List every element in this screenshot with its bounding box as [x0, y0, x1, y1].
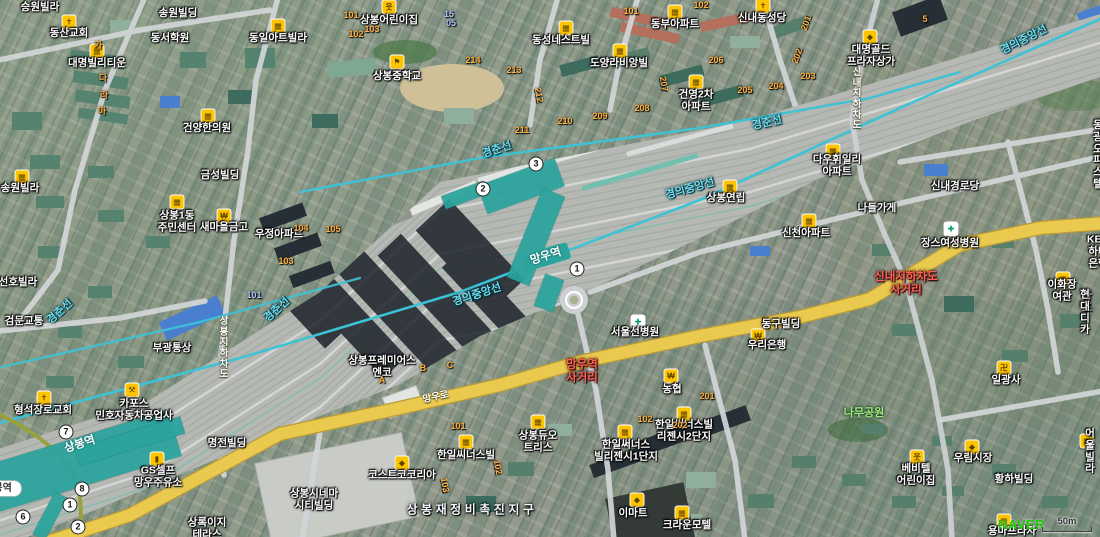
poi-label[interactable]: 동산교회	[50, 28, 89, 40]
block-number: 202	[790, 47, 805, 65]
poi-label[interactable]: 상록이지 테라스	[188, 517, 227, 537]
poi-label[interactable]: 승원빌라	[21, 2, 60, 14]
block-number: 103	[278, 256, 293, 266]
rail-line-label: 경춘선	[751, 114, 783, 133]
poi-label[interactable]: 신천아파트	[782, 228, 830, 240]
bank-icon[interactable]: ₩	[664, 369, 679, 384]
poi-label[interactable]: 다우휘일리 아파트	[813, 154, 861, 178]
poi-label[interactable]: 서울선병원	[611, 327, 659, 339]
station-exit-badge[interactable]: 3	[529, 157, 544, 172]
poi-label[interactable]: 선호빌라	[0, 277, 37, 289]
block-number: 102	[492, 459, 505, 476]
building-icon[interactable]: ▦	[618, 425, 633, 440]
poi-label[interactable]: 명전빌딩	[208, 438, 247, 450]
station-exit-badge[interactable]: 1	[63, 498, 78, 513]
poi-label[interactable]: 대명골드 프라자상가	[847, 44, 895, 68]
naver-logo[interactable]: NAVER	[998, 517, 1045, 532]
poi-label[interactable]: 이마트	[619, 508, 648, 520]
block-number: 206	[708, 55, 723, 65]
poi-label[interactable]: 카포스 민호자동차공업사	[95, 398, 172, 422]
daycare-icon[interactable]: 웃	[382, 0, 397, 15]
poi-label[interactable]: 송원빌라	[1, 183, 40, 195]
poi-label[interactable]: 농협	[662, 384, 681, 396]
poi-label[interactable]: 상봉시네마 시티빌딩	[290, 488, 338, 512]
station-exit-badge[interactable]: 6	[16, 510, 31, 525]
poi-label[interactable]: 장스여성병원	[921, 238, 979, 250]
block-number: 208	[634, 103, 649, 113]
block-number: 213	[506, 65, 521, 75]
poi-label[interactable]: 동광오피스텔	[1093, 120, 1100, 191]
block-number: 다	[99, 73, 107, 83]
poi-label[interactable]: 한일써너스 빌리젠시1단지	[594, 439, 658, 463]
intersection-label: 신내지하차도 사거리	[874, 271, 937, 297]
car-repair-icon[interactable]: ⚒	[125, 383, 140, 398]
station-exit-badge[interactable]: 2	[476, 182, 491, 197]
poi-label[interactable]: GS셀프 망우주유소	[134, 465, 182, 489]
poi-label[interactable]: 우리은행	[748, 340, 787, 352]
poi-label[interactable]: 어울빌라	[1085, 429, 1095, 476]
scale-label: 50m	[1057, 516, 1076, 527]
building-icon[interactable]: ▦	[459, 435, 474, 450]
block-number: 102	[348, 29, 363, 39]
station-exit-badge[interactable]: 7	[59, 425, 74, 440]
poi-label[interactable]: 상봉연립	[707, 193, 746, 205]
road-label: 망우로	[422, 390, 450, 406]
school-flag-icon[interactable]: ⚑	[390, 55, 405, 70]
shopping-icon[interactable]: ◆	[863, 30, 878, 45]
poi-label[interactable]: 부광통상	[153, 343, 192, 355]
block-number: 205	[737, 85, 752, 95]
rail-line-label: 경춘선	[262, 295, 293, 324]
block-number: 101	[623, 6, 638, 16]
poi-label[interactable]: 새마을금고	[200, 222, 248, 234]
road-label: 신 내 지 하 차 도	[853, 68, 862, 132]
shopping-icon[interactable]: ◆	[630, 493, 645, 508]
poi-label[interactable]: 상봉1동 주민센터	[158, 210, 197, 234]
hospital-icon[interactable]: ✚	[944, 222, 959, 237]
block-number: 마	[98, 106, 106, 116]
poi-label[interactable]: 이화장여관	[1043, 279, 1081, 303]
poi-label[interactable]: 상봉중학교	[373, 71, 421, 83]
poi-label[interactable]: 송원빌딩	[159, 8, 198, 20]
block-number: 211	[515, 125, 530, 135]
scale-bar: 50m	[1042, 516, 1092, 532]
map-canvas[interactable]: 상봉역 ✝✝✝▦▦▦▦▦▦▦▦▦▦▦▦▦▦▦▦▦▦▦▦◆◆◆◆₩₩₩✚✚⚑웃웃卍…	[0, 0, 1100, 537]
block-number: 201	[699, 391, 714, 401]
block-number: 201	[799, 14, 814, 32]
block-number: 라	[100, 90, 108, 100]
park-label: 나무공원	[844, 407, 884, 419]
block-number: 214	[465, 55, 480, 65]
rail-line-label: 경춘선	[45, 297, 76, 326]
station-exit-badge[interactable]: 8	[75, 482, 90, 497]
block-number: 204	[768, 81, 783, 91]
building-icon[interactable]: ▦	[689, 75, 704, 90]
block-number: 103	[364, 24, 379, 34]
block-number: C	[447, 360, 454, 370]
poi-label[interactable]: 코스트코코리아	[368, 470, 436, 482]
block-number: 102	[637, 414, 652, 424]
poi-label[interactable]: 베비텔 어린이집	[897, 463, 936, 487]
rail-line-label: 경춘선	[481, 139, 514, 160]
block-number: 209	[592, 111, 607, 121]
poi-label[interactable]: 도양라비앙빌	[590, 58, 648, 70]
block-number: 210	[557, 116, 572, 126]
map-labels-layer: ✝✝✝▦▦▦▦▦▦▦▦▦▦▦▦▦▦▦▦▦▦▦▦◆◆◆◆₩₩₩✚✚⚑웃웃卍▮⚒승원…	[0, 0, 1100, 537]
poi-label[interactable]: 대명빌리티운	[68, 58, 126, 70]
poi-label[interactable]: 나들가게	[858, 203, 897, 215]
block-number: B	[420, 363, 427, 373]
block-number: A	[379, 375, 386, 385]
poi-label[interactable]: 동서학원	[151, 33, 190, 45]
block-number: 가	[94, 40, 102, 50]
poi-label[interactable]: KEB하나은행	[1087, 234, 1100, 269]
station-exit-badge[interactable]: 2	[71, 520, 86, 535]
block-number: 5	[922, 14, 927, 24]
poi-label[interactable]: 한일씨너스빌	[437, 450, 495, 462]
poi-label[interactable]: 우림시장	[954, 453, 993, 465]
poi-label[interactable]: 현대디카	[1078, 290, 1093, 337]
block-number: 202	[672, 420, 687, 430]
poi-label[interactable]: 동성네스트빌	[532, 35, 590, 47]
poi-label[interactable]: 동부아파트	[651, 19, 699, 31]
poi-label[interactable]: 건양한의원	[183, 123, 231, 135]
poi-label[interactable]: 신내동성당	[738, 13, 786, 25]
poi-label[interactable]: 상봉듀오 트리스	[519, 430, 558, 454]
block-number: 104	[293, 223, 308, 233]
building-icon[interactable]: ▦	[170, 195, 185, 210]
road-label: 상 봉 지 하 차 도	[220, 317, 229, 381]
scale-bar-line	[1042, 527, 1092, 532]
block-number: 102	[693, 0, 708, 10]
block-number: 103	[439, 477, 452, 494]
rail-line-label: 경의중앙선	[451, 281, 503, 308]
poi-label[interactable]: 건영2차 아파트	[679, 89, 714, 113]
block-number: 101	[450, 421, 465, 431]
rail-line-label: 경의중앙선	[999, 23, 1050, 57]
intersection-label: 망우역 사거리	[566, 359, 598, 385]
station-label[interactable]: 망우역	[521, 242, 572, 272]
poi-label[interactable]: 금성빌딩	[201, 170, 240, 182]
station-exit-badge[interactable]: 1	[570, 262, 585, 277]
block-number: 05	[446, 18, 456, 28]
poi-label[interactable]: 크라운모텔	[663, 520, 711, 532]
district-label: 상봉재정비촉진지구	[407, 503, 538, 516]
block-number: 212	[533, 87, 546, 104]
poi-label[interactable]: 일광사	[992, 375, 1021, 387]
poi-label[interactable]: 신내경로당	[931, 181, 979, 193]
block-number: 101	[246, 290, 261, 300]
poi-label[interactable]: 동구빌딩	[762, 319, 801, 331]
block-number: 105	[325, 224, 340, 234]
block-number: 203	[800, 71, 815, 81]
poi-label[interactable]: 동일아트빌라	[249, 33, 307, 45]
building-icon[interactable]: ▦	[531, 415, 546, 430]
block-number: 207	[658, 76, 671, 93]
poi-label[interactable]: 검문교통	[5, 316, 44, 328]
block-number: 101	[343, 10, 358, 20]
poi-label[interactable]: 형석장로교회	[14, 405, 72, 417]
poi-label[interactable]: 황하빌딩	[995, 474, 1034, 486]
